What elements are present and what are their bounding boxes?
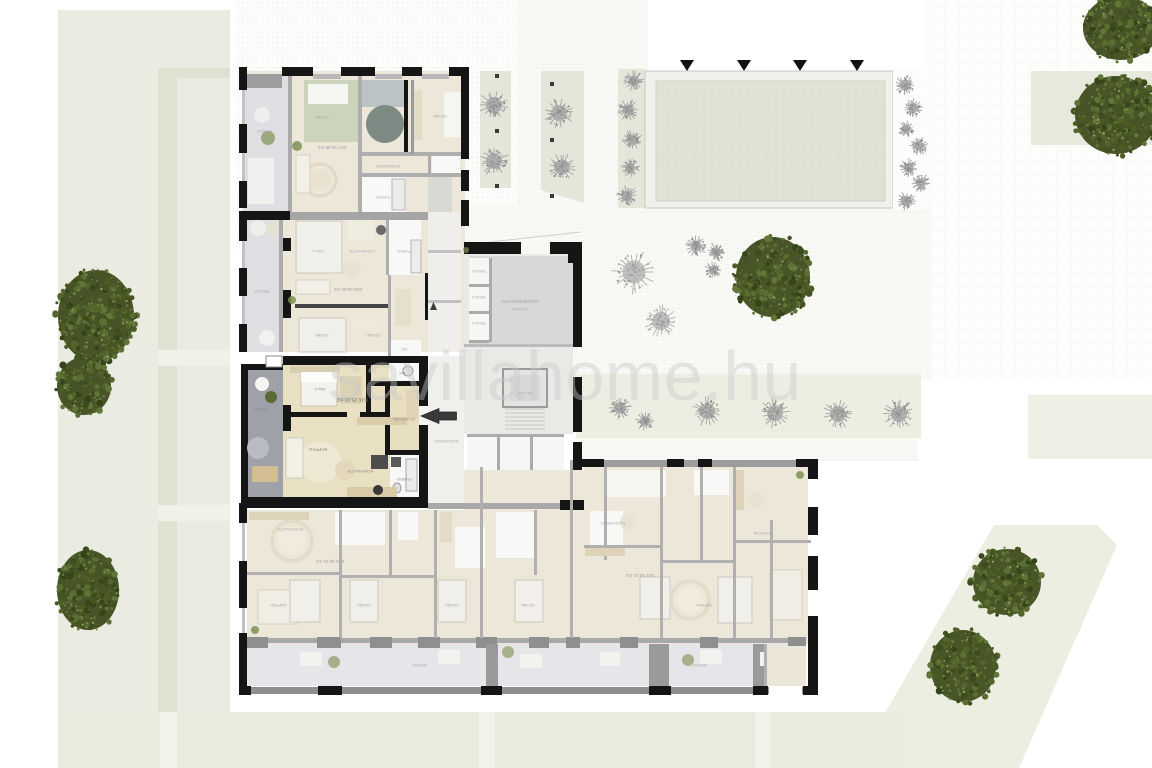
svg-text:TERASZ: TERASZ — [254, 289, 270, 294]
svg-text:KONYHA-ETK: KONYHA-ETK — [277, 527, 303, 532]
svg-text:FURDO: FURDO — [397, 477, 411, 482]
svg-text:KOZLEKEDO: KOZLEKEDO — [601, 521, 625, 526]
svg-text:HALO: HALO — [315, 387, 326, 392]
svg-text:B18 55,00 m2: B18 55,00 m2 — [333, 287, 362, 292]
svg-text:SZOBA: SZOBA — [521, 603, 535, 608]
svg-text:FURDO: FURDO — [376, 195, 390, 200]
svg-text:TERASZ: TERASZ — [692, 663, 708, 668]
svg-text:WC: WC — [399, 371, 406, 376]
svg-text:HALO: HALO — [313, 249, 324, 254]
svg-text:B16 25,00 m2: B16 25,00 m2 — [336, 396, 367, 402]
svg-text:SZOBA: SZOBA — [433, 114, 447, 119]
svg-text:B30 86,10 m2: B30 86,10 m2 — [315, 559, 344, 564]
svg-text:KOZLEKEDO: KOZLEKEDO — [434, 439, 458, 444]
svg-text:NAPPALI: NAPPALI — [696, 603, 713, 608]
svg-text:SZOBA: SZOBA — [357, 603, 371, 608]
svg-text:SZOBA: SZOBA — [445, 603, 459, 608]
svg-text:WC: WC — [401, 347, 408, 352]
svg-text:ELOSZOBA: ELOSZOBA — [393, 417, 415, 422]
svg-text:TAROLO: TAROLO — [472, 269, 486, 273]
svg-text:TAROLO: TAROLO — [472, 295, 486, 299]
svg-text:KOZLEKEDO LPH: KOZLEKEDO LPH — [501, 299, 539, 304]
svg-text:32,45 m2: 32,45 m2 — [511, 307, 528, 312]
svg-text:KONYHA: KONYHA — [753, 531, 770, 536]
svg-text:NAPPALI: NAPPALI — [309, 447, 328, 452]
svg-text:SZOBA: SZOBA — [315, 115, 329, 120]
svg-text:KOZLEKEDO: KOZLEKEDO — [376, 164, 400, 169]
svg-text:KONYHA-ETK: KONYHA-ETK — [347, 469, 373, 474]
svg-text:B31 93,01 m2: B31 93,01 m2 — [625, 573, 654, 578]
svg-text:SZOBA: SZOBA — [367, 333, 381, 338]
svg-text:TERASZ: TERASZ — [412, 663, 428, 668]
svg-text:B17 55,98 m2: B17 55,98 m2 — [317, 145, 346, 150]
svg-text:SZ.HAZ: SZ.HAZ — [517, 391, 532, 396]
svg-text:TERASZ: TERASZ — [254, 407, 270, 412]
svg-text:SZOBA: SZOBA — [315, 333, 329, 338]
svg-text:FURDO: FURDO — [397, 249, 411, 254]
svg-text:NAPPALI: NAPPALI — [270, 603, 287, 608]
svg-text:TAROLO: TAROLO — [472, 321, 486, 325]
svg-text:KONYHA ETK: KONYHA ETK — [349, 249, 375, 254]
svg-text:TERASZ: TERASZ — [257, 129, 273, 134]
